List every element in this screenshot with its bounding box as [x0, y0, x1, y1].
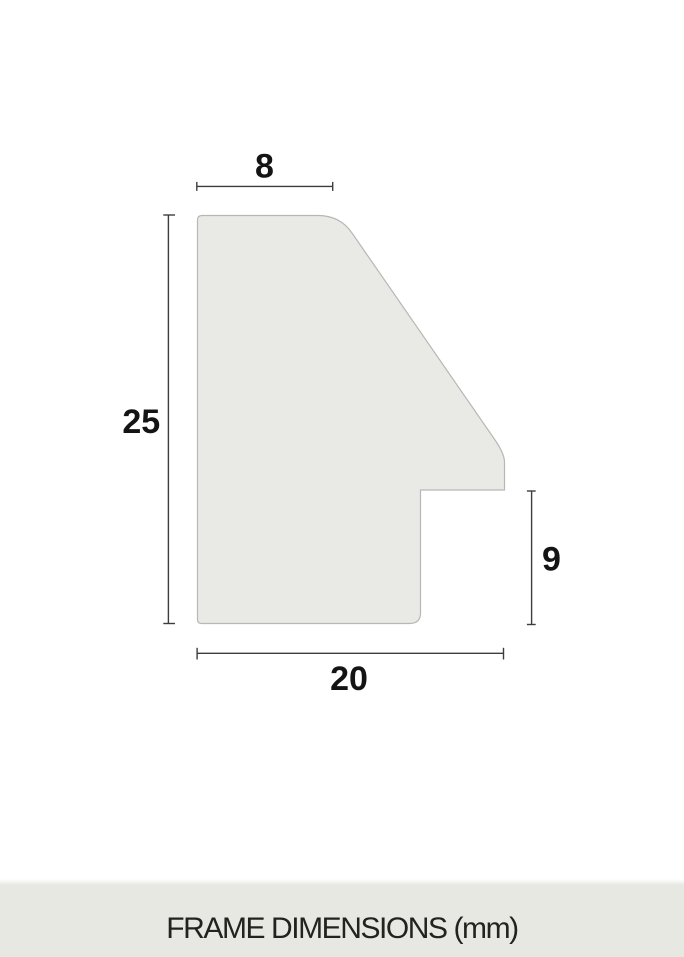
svg-text:8: 8 [255, 148, 274, 186]
svg-text:20: 20 [330, 660, 368, 698]
svg-text:25: 25 [122, 403, 160, 441]
svg-text:9: 9 [542, 541, 561, 579]
